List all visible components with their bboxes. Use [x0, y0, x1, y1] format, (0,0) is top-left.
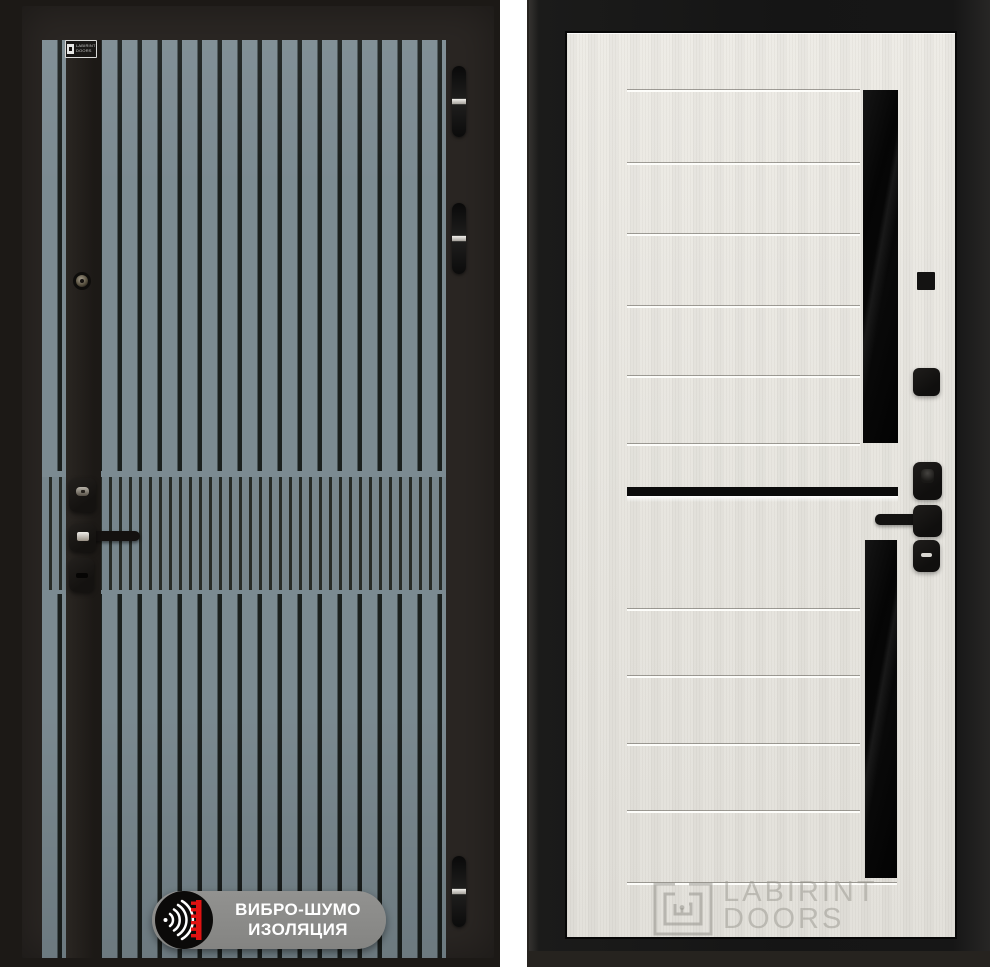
door-handle-lever: [875, 514, 917, 525]
hinge-top: [452, 66, 466, 137]
left-door-slat-panel: [42, 40, 446, 958]
peephole: [73, 272, 91, 290]
product-collage: LABIRINT DOORS: [0, 0, 990, 967]
slats-top-section: [42, 40, 446, 471]
keyhole-slot: [76, 573, 88, 578]
glass-insert-lower: [865, 540, 897, 878]
panel-groove: [627, 675, 860, 678]
hinge-middle: [452, 203, 466, 274]
watermark-text: LABIRINT DOORS: [723, 879, 878, 933]
brand-plate-label: LABIRINT DOORS: [76, 44, 96, 53]
photo-divider: [500, 0, 527, 967]
keyhole-escutcheon: [69, 558, 94, 592]
lock-cylinder-escutcheon: [69, 478, 96, 512]
badge-label: ВИБРО-ШУМО ИЗОЛЯЦИЯ: [218, 891, 378, 949]
labyrinth-logo-icon: [653, 882, 713, 936]
watermark-word: DOORS: [723, 906, 878, 933]
door-handle-rose: [913, 505, 942, 537]
glass-insert-upper: [863, 90, 898, 443]
badge-line2: ИЗОЛЯЦИЯ: [248, 920, 348, 940]
brand-plate-line2: DOORS: [76, 49, 96, 54]
brand-plate-keyhole-icon: [67, 44, 74, 54]
panel-groove: [627, 89, 860, 92]
hinge-ring: [452, 98, 466, 105]
panel-groove: [627, 608, 860, 611]
glass-stripe-highlight: [627, 496, 898, 502]
badge-line1: ВИБРО-ШУМО: [235, 900, 361, 920]
hinge-ring: [452, 235, 466, 242]
panel-groove: [627, 305, 860, 308]
left-door-photo: LABIRINT DOORS: [0, 0, 500, 967]
keyhole-slot: [921, 553, 932, 557]
stopper-square: [917, 272, 935, 290]
lock-cylinder-escutcheon: [913, 462, 942, 500]
noise-insulation-badge: ВИБРО-ШУМО ИЗОЛЯЦИЯ: [152, 891, 386, 949]
brand-plate: LABIRINT DOORS: [65, 40, 97, 58]
lock-cylinder: [76, 487, 89, 496]
panel-groove: [627, 743, 860, 746]
hinge-bottom: [452, 856, 466, 927]
peephole-cover: [913, 368, 940, 396]
panel-groove: [627, 162, 860, 165]
panel-groove: [627, 233, 860, 236]
panel-groove: [627, 810, 860, 813]
door-handle-neck: [77, 532, 89, 541]
watermark-brand: LABIRINT: [723, 879, 878, 906]
panel-groove: [627, 375, 860, 378]
glass-stripe-middle: [627, 487, 898, 496]
hinge-ring: [452, 888, 466, 895]
sound-waves-icon: [155, 891, 213, 949]
right-door-panel: LABIRINT DOORS: [567, 33, 955, 937]
panel-groove: [627, 443, 860, 446]
keyhole-escutcheon: [913, 540, 940, 572]
right-door-photo: LABIRINT DOORS: [527, 0, 990, 967]
